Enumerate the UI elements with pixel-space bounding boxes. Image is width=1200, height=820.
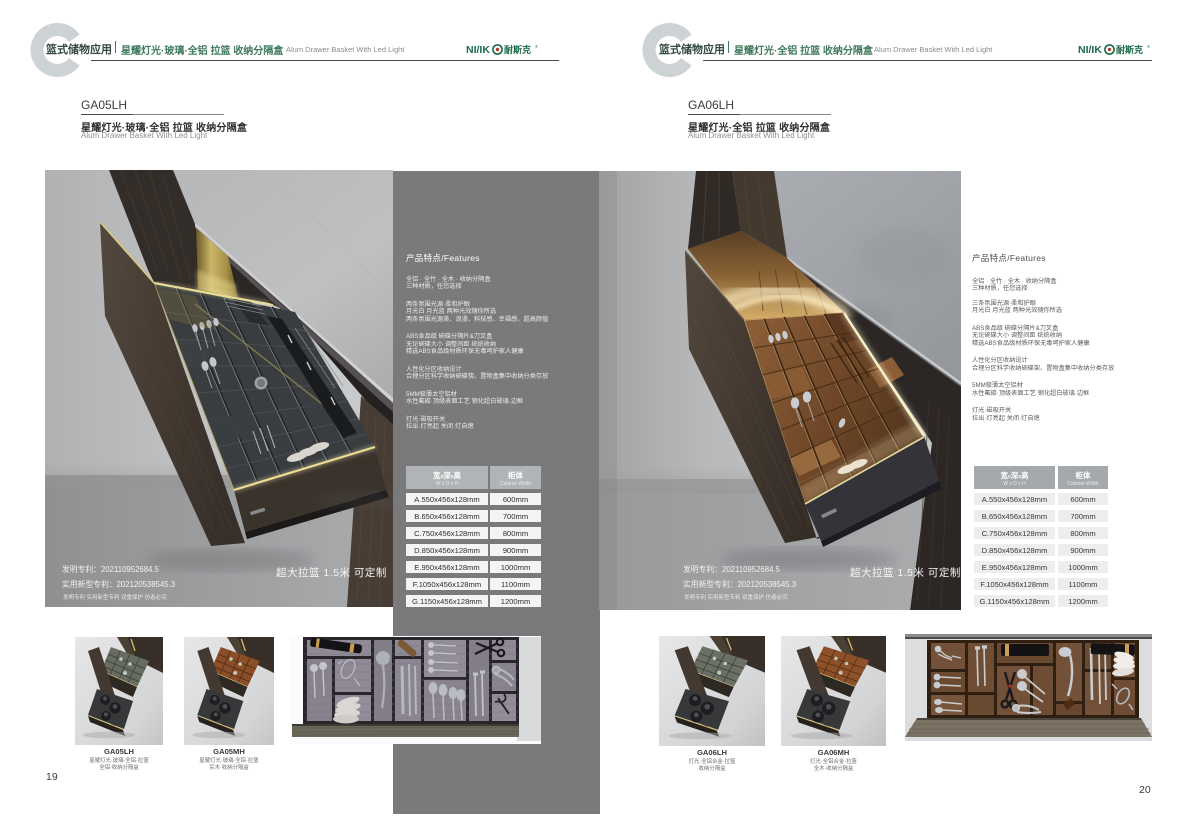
svg-text:NI/IK: NI/IK — [466, 44, 490, 55]
svg-text:耐斯克: 耐斯克 — [504, 44, 531, 55]
svg-text:®: ® — [535, 44, 538, 49]
svg-text:NI/IK: NI/IK — [1078, 44, 1102, 55]
svg-text:耐斯克: 耐斯克 — [1116, 44, 1143, 55]
svg-text:®: ® — [1147, 44, 1150, 49]
